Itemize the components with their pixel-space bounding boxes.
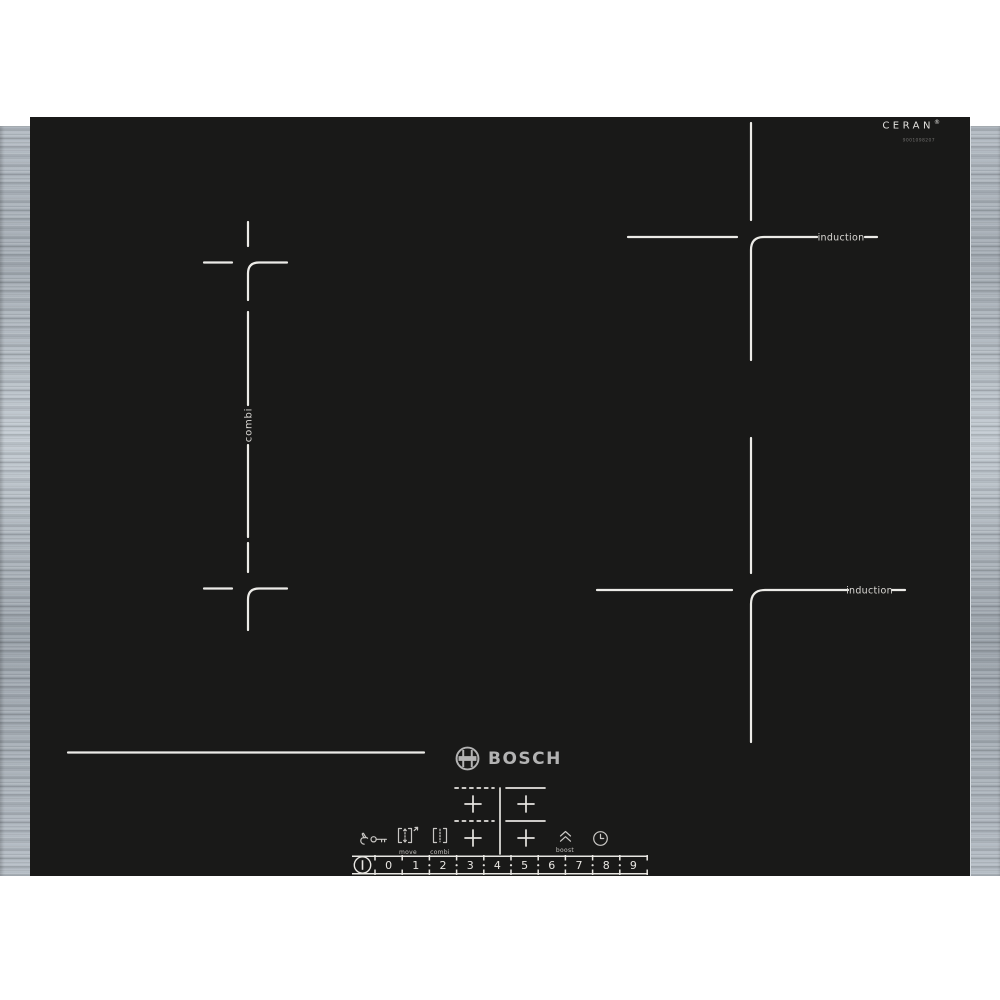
power-level-9[interactable]: 9 — [630, 859, 637, 872]
boost-icon — [559, 830, 572, 843]
cooking-zone-rear-left-marking — [204, 222, 287, 300]
ceran-brand: CERAN® — [835, 119, 940, 131]
zone-select-cross-front-right[interactable] — [518, 830, 534, 846]
power-level-6[interactable]: 6 — [548, 859, 555, 872]
power-level-7[interactable]: 7 — [576, 859, 583, 872]
child-lock-icon — [358, 830, 390, 847]
timer-clock-icon — [592, 830, 609, 847]
move-button[interactable]: move — [395, 826, 421, 856]
bosch-logo-text: BOSCH — [488, 749, 562, 769]
power-level-8[interactable]: 8 — [603, 859, 610, 872]
combi-icon — [432, 826, 448, 845]
power-level-2[interactable]: 2 — [440, 859, 447, 872]
steel-rail-right — [969, 126, 1000, 876]
zone-selector-map[interactable] — [455, 788, 545, 854]
ceran-part-number: 9001098207 — [860, 138, 935, 143]
power-level-0[interactable]: 0 — [385, 859, 392, 872]
child-lock-button[interactable] — [358, 830, 390, 851]
boost-button[interactable]: boost — [551, 828, 579, 854]
product-image: combi induction induction — [0, 0, 1000, 1000]
timer-button[interactable] — [592, 830, 609, 851]
steel-rail-left — [0, 126, 33, 876]
zone-select-cross-front-left[interactable] — [465, 830, 481, 846]
power-slider[interactable]: 0 1 2 3 4 5 6 7 8 9 — [352, 855, 648, 879]
bosch-logo-icon — [455, 746, 480, 771]
power-button[interactable] — [354, 857, 370, 873]
induction-label-front: induction — [846, 586, 893, 597]
induction-label-rear: induction — [818, 233, 865, 244]
trademark-symbol: ® — [934, 119, 940, 126]
power-level-1[interactable]: 1 — [412, 859, 419, 872]
power-level-3[interactable]: 3 — [467, 859, 474, 872]
zone-select-cross-rear-left[interactable] — [465, 796, 481, 812]
combi-button[interactable]: combi — [427, 826, 453, 856]
cooking-zone-front-left-marking — [204, 543, 287, 630]
boost-label: boost — [551, 848, 579, 854]
power-level-5[interactable]: 5 — [521, 859, 528, 872]
zone-select-cross-rear-right[interactable] — [518, 796, 534, 812]
power-level-4[interactable]: 4 — [494, 859, 501, 872]
move-icon — [397, 826, 419, 845]
bosch-logo: BOSCH — [455, 746, 562, 771]
combi-zone-label: combi — [244, 408, 255, 442]
